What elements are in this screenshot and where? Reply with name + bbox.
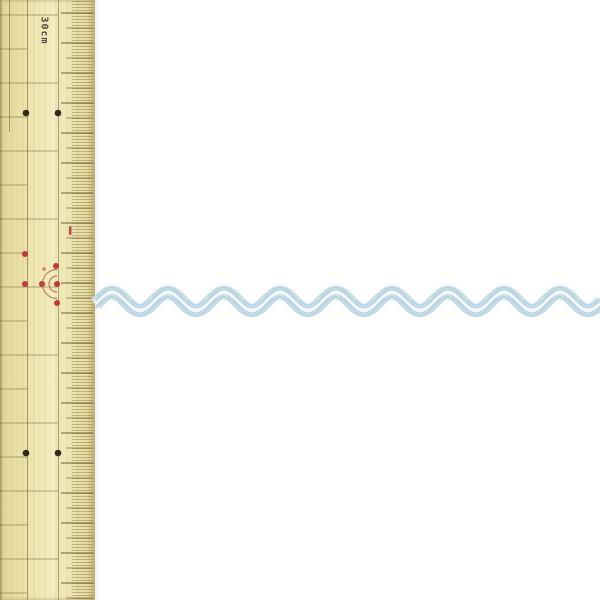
ricrac-ribbon [0,0,600,600]
product-photo: 30cm [0,0,600,600]
